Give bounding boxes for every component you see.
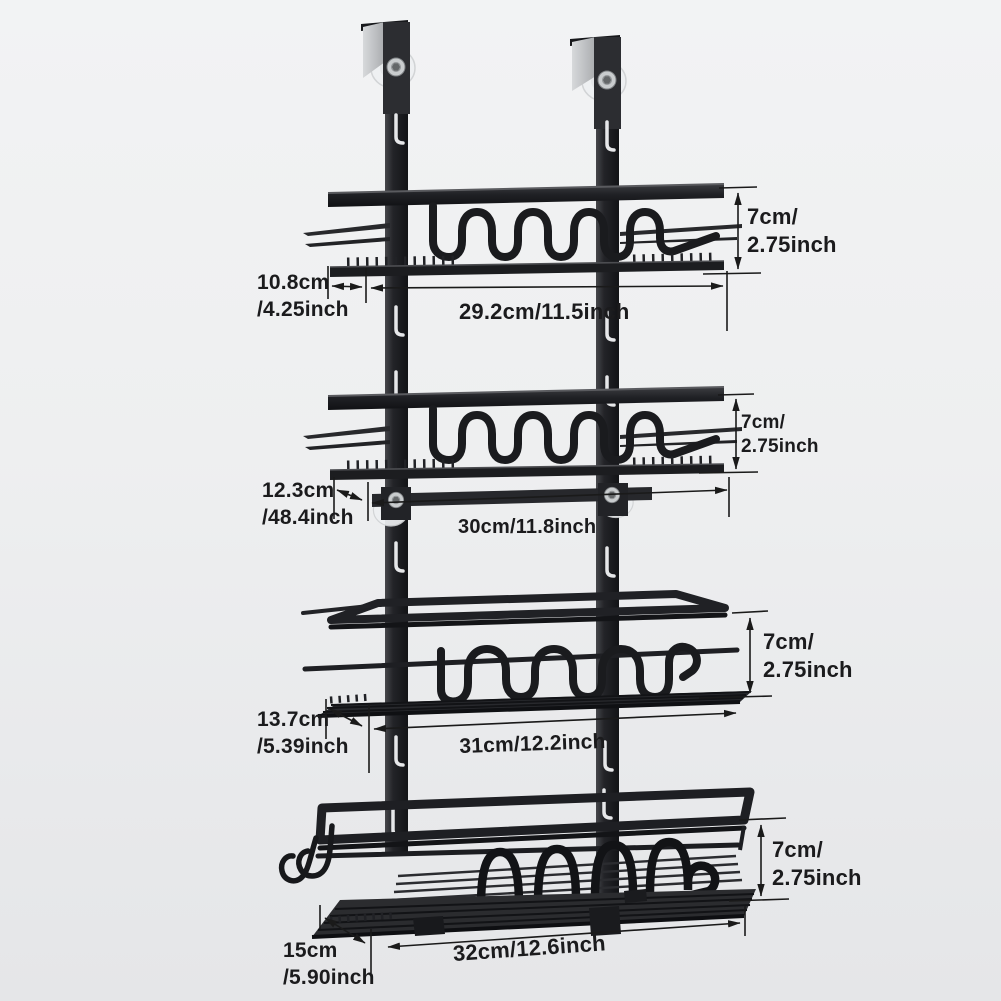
tier1-shelf (303, 184, 742, 277)
tier1-width-label: 29.2cm/11.5inch (459, 298, 630, 326)
tier3-height-label: 7cm/ 2.75inch (763, 628, 853, 684)
tier2-width-label: 30cm/11.8inch (458, 515, 596, 541)
tier4-height-label: 7cm/ 2.75inch (772, 836, 862, 892)
tier2-shelf (303, 387, 742, 480)
product-image: 7cm/ 2.75inch 10.8cm /4.25inch 29.2cm/11… (0, 0, 1001, 1001)
tier1-depth-label: 10.8cm /4.25inch (257, 270, 349, 324)
tier4-depth-label: 15cm /5.90inch (283, 938, 375, 992)
tier2-height-label: 7cm/ 2.75inch (741, 411, 819, 460)
tier2-depth-label: 12.3cm /48.4inch (262, 478, 354, 532)
tier4-basket (282, 792, 756, 937)
tier3-depth-label: 13.7cm /5.39inch (257, 707, 349, 761)
foot (624, 889, 647, 903)
side-hook (299, 826, 332, 876)
tier3-basket (303, 594, 752, 716)
tier3-width-label: 31cm/12.2inch (459, 729, 606, 761)
foot (413, 916, 445, 936)
tier1-height-label: 7cm/ 2.75inch (747, 203, 837, 259)
